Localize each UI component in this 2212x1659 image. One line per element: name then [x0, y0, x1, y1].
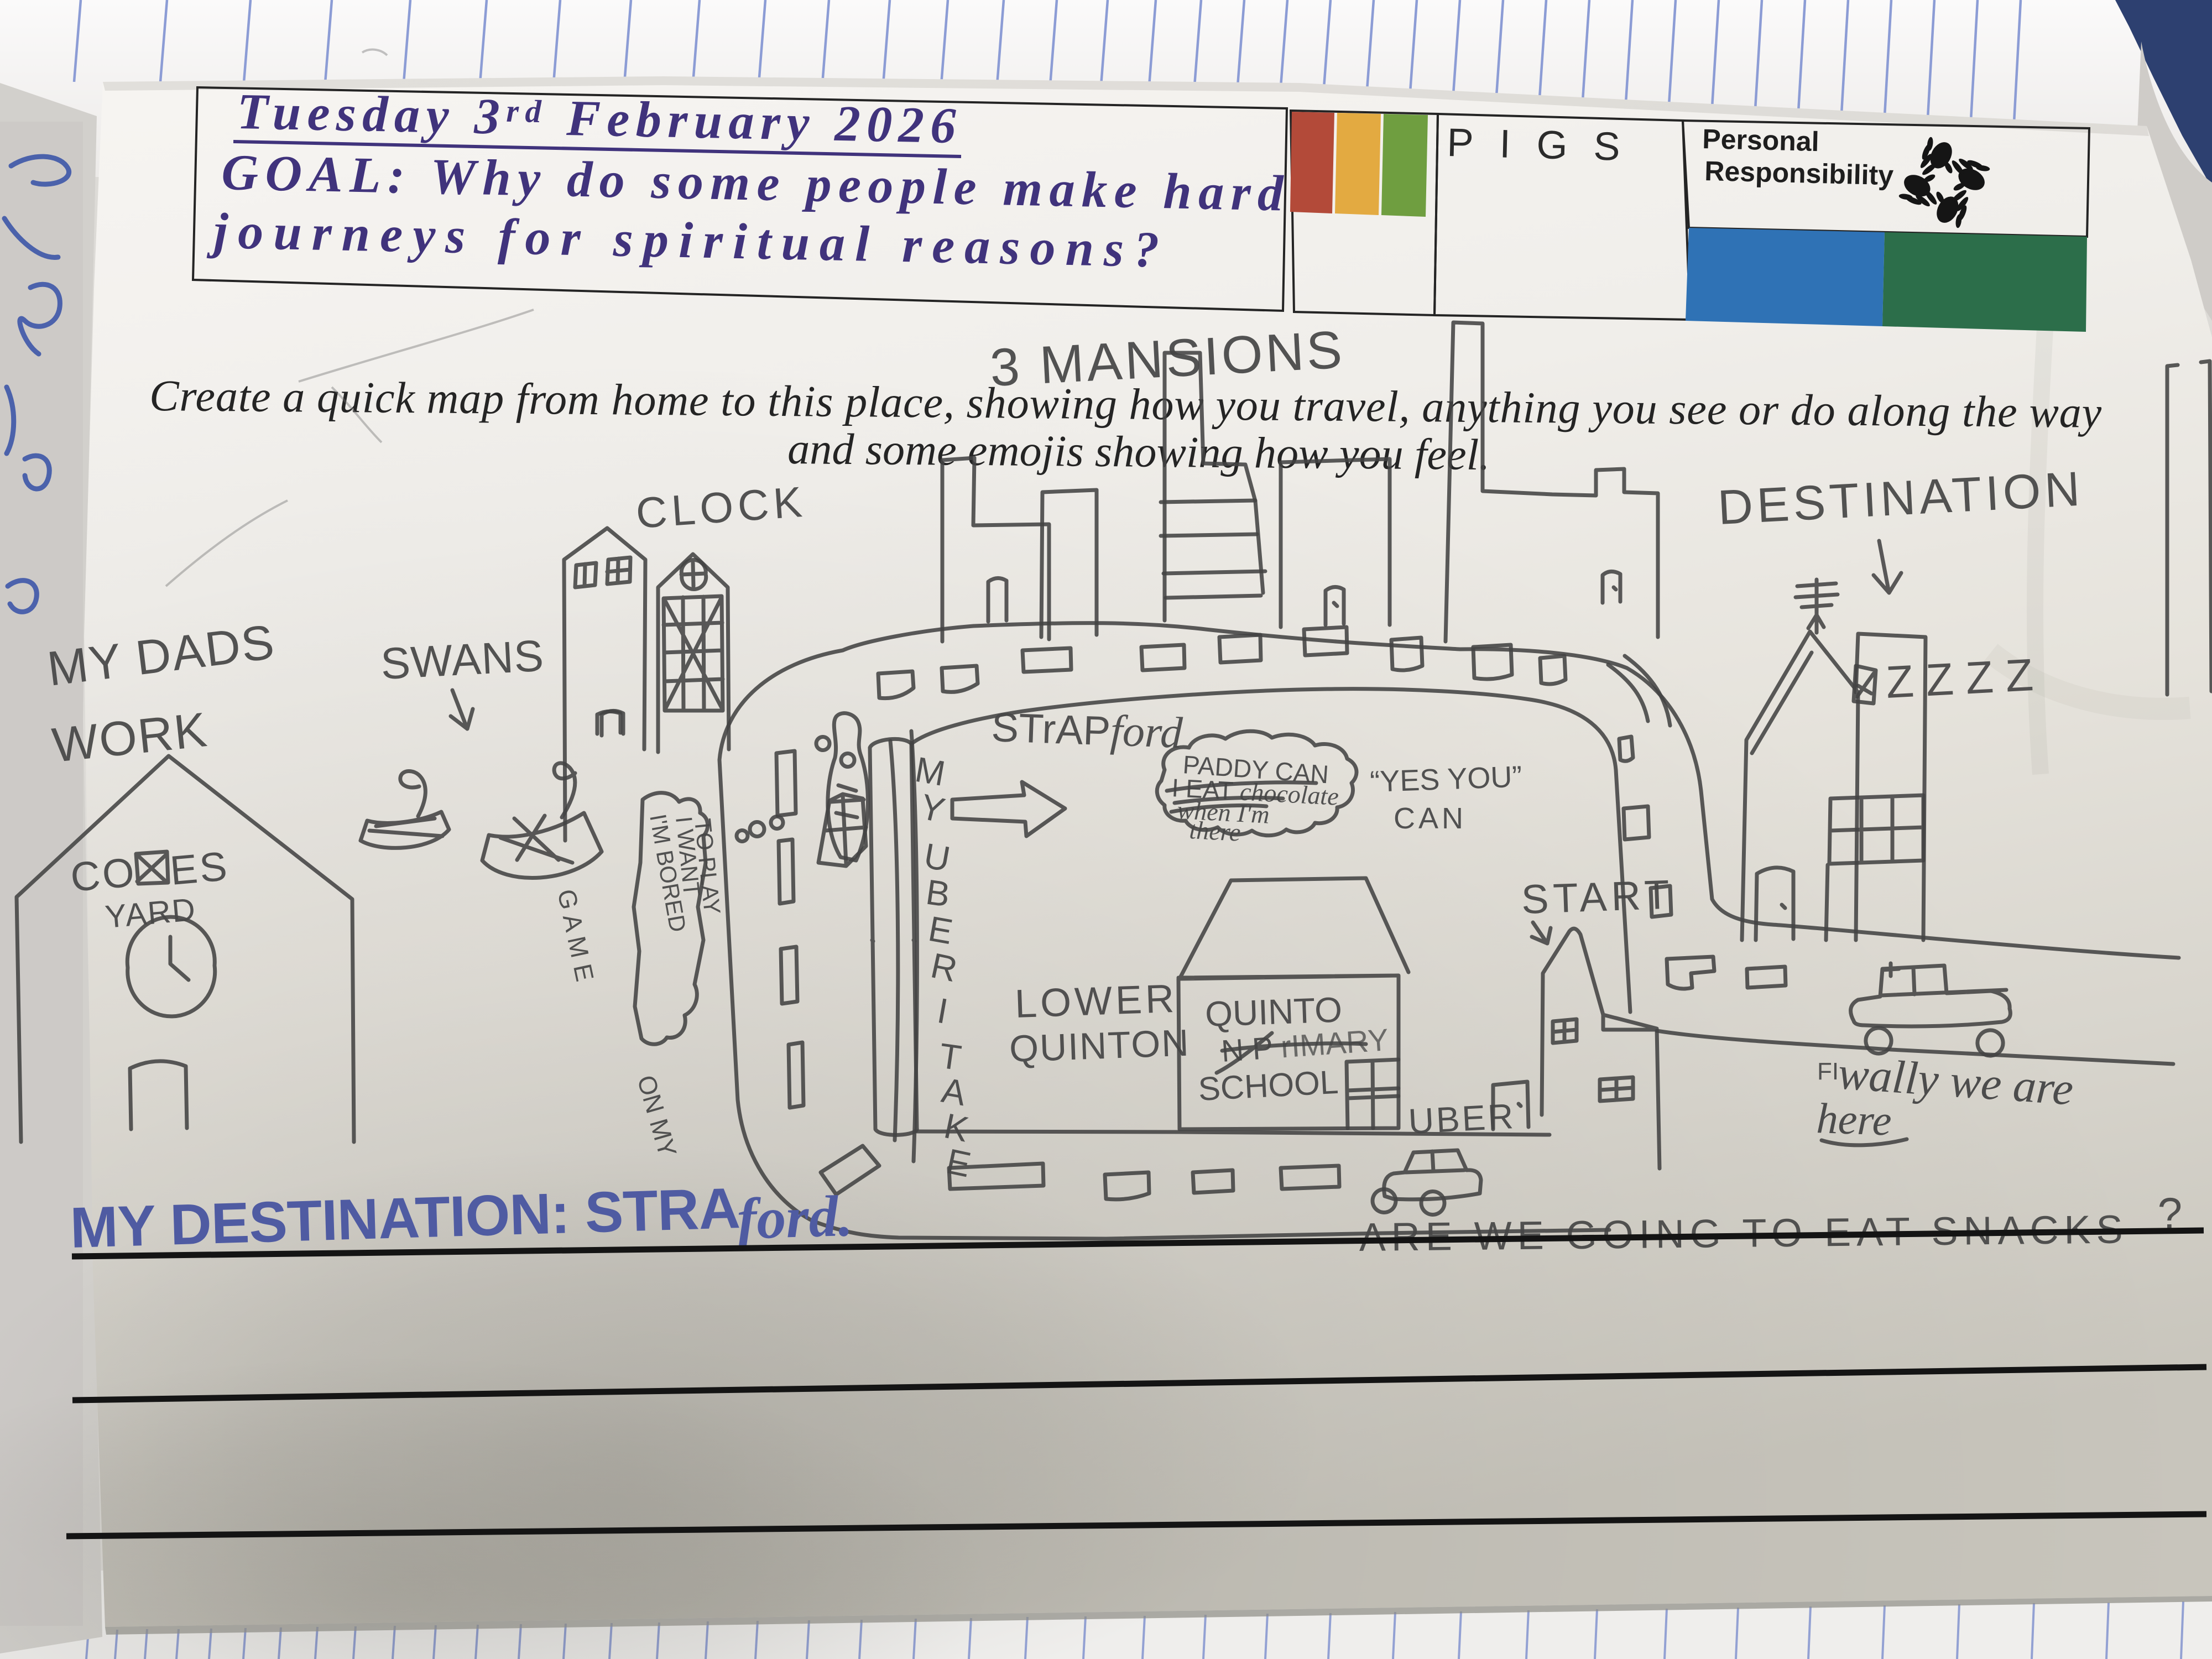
svg-text:PIGS: PIGS	[1447, 121, 1647, 170]
svg-text:here: here	[1815, 1094, 1892, 1145]
svg-text:CO: CO	[69, 849, 138, 900]
svg-text:CAN: CAN	[1394, 802, 1467, 835]
svg-text:“YES YOU”: “YES YOU”	[1369, 760, 1522, 799]
svg-text:ZZZZ: ZZZZ	[1885, 649, 2047, 708]
svg-text:Responsibility: Responsibility	[1704, 155, 1894, 191]
svg-text:Personal: Personal	[1702, 123, 1820, 157]
svg-text:START: START	[1521, 871, 1674, 922]
svg-text:UBER: UBER	[1407, 1096, 1516, 1141]
svg-text:there: there	[1188, 816, 1241, 847]
svg-text:STrAPford: STrAPford	[990, 702, 1183, 758]
svg-text:SWANS: SWANS	[379, 631, 545, 688]
svg-text:LOWER: LOWER	[1014, 977, 1178, 1026]
svg-text:QUINTON: QUINTON	[1009, 1022, 1191, 1070]
svg-text:ford.: ford.	[736, 1183, 853, 1251]
svg-text:ES: ES	[168, 843, 231, 894]
svg-text:and some emojis showing how yo: and some emojis showing how you feel.	[787, 425, 1490, 479]
svg-text:FI: FI	[1817, 1058, 1839, 1085]
